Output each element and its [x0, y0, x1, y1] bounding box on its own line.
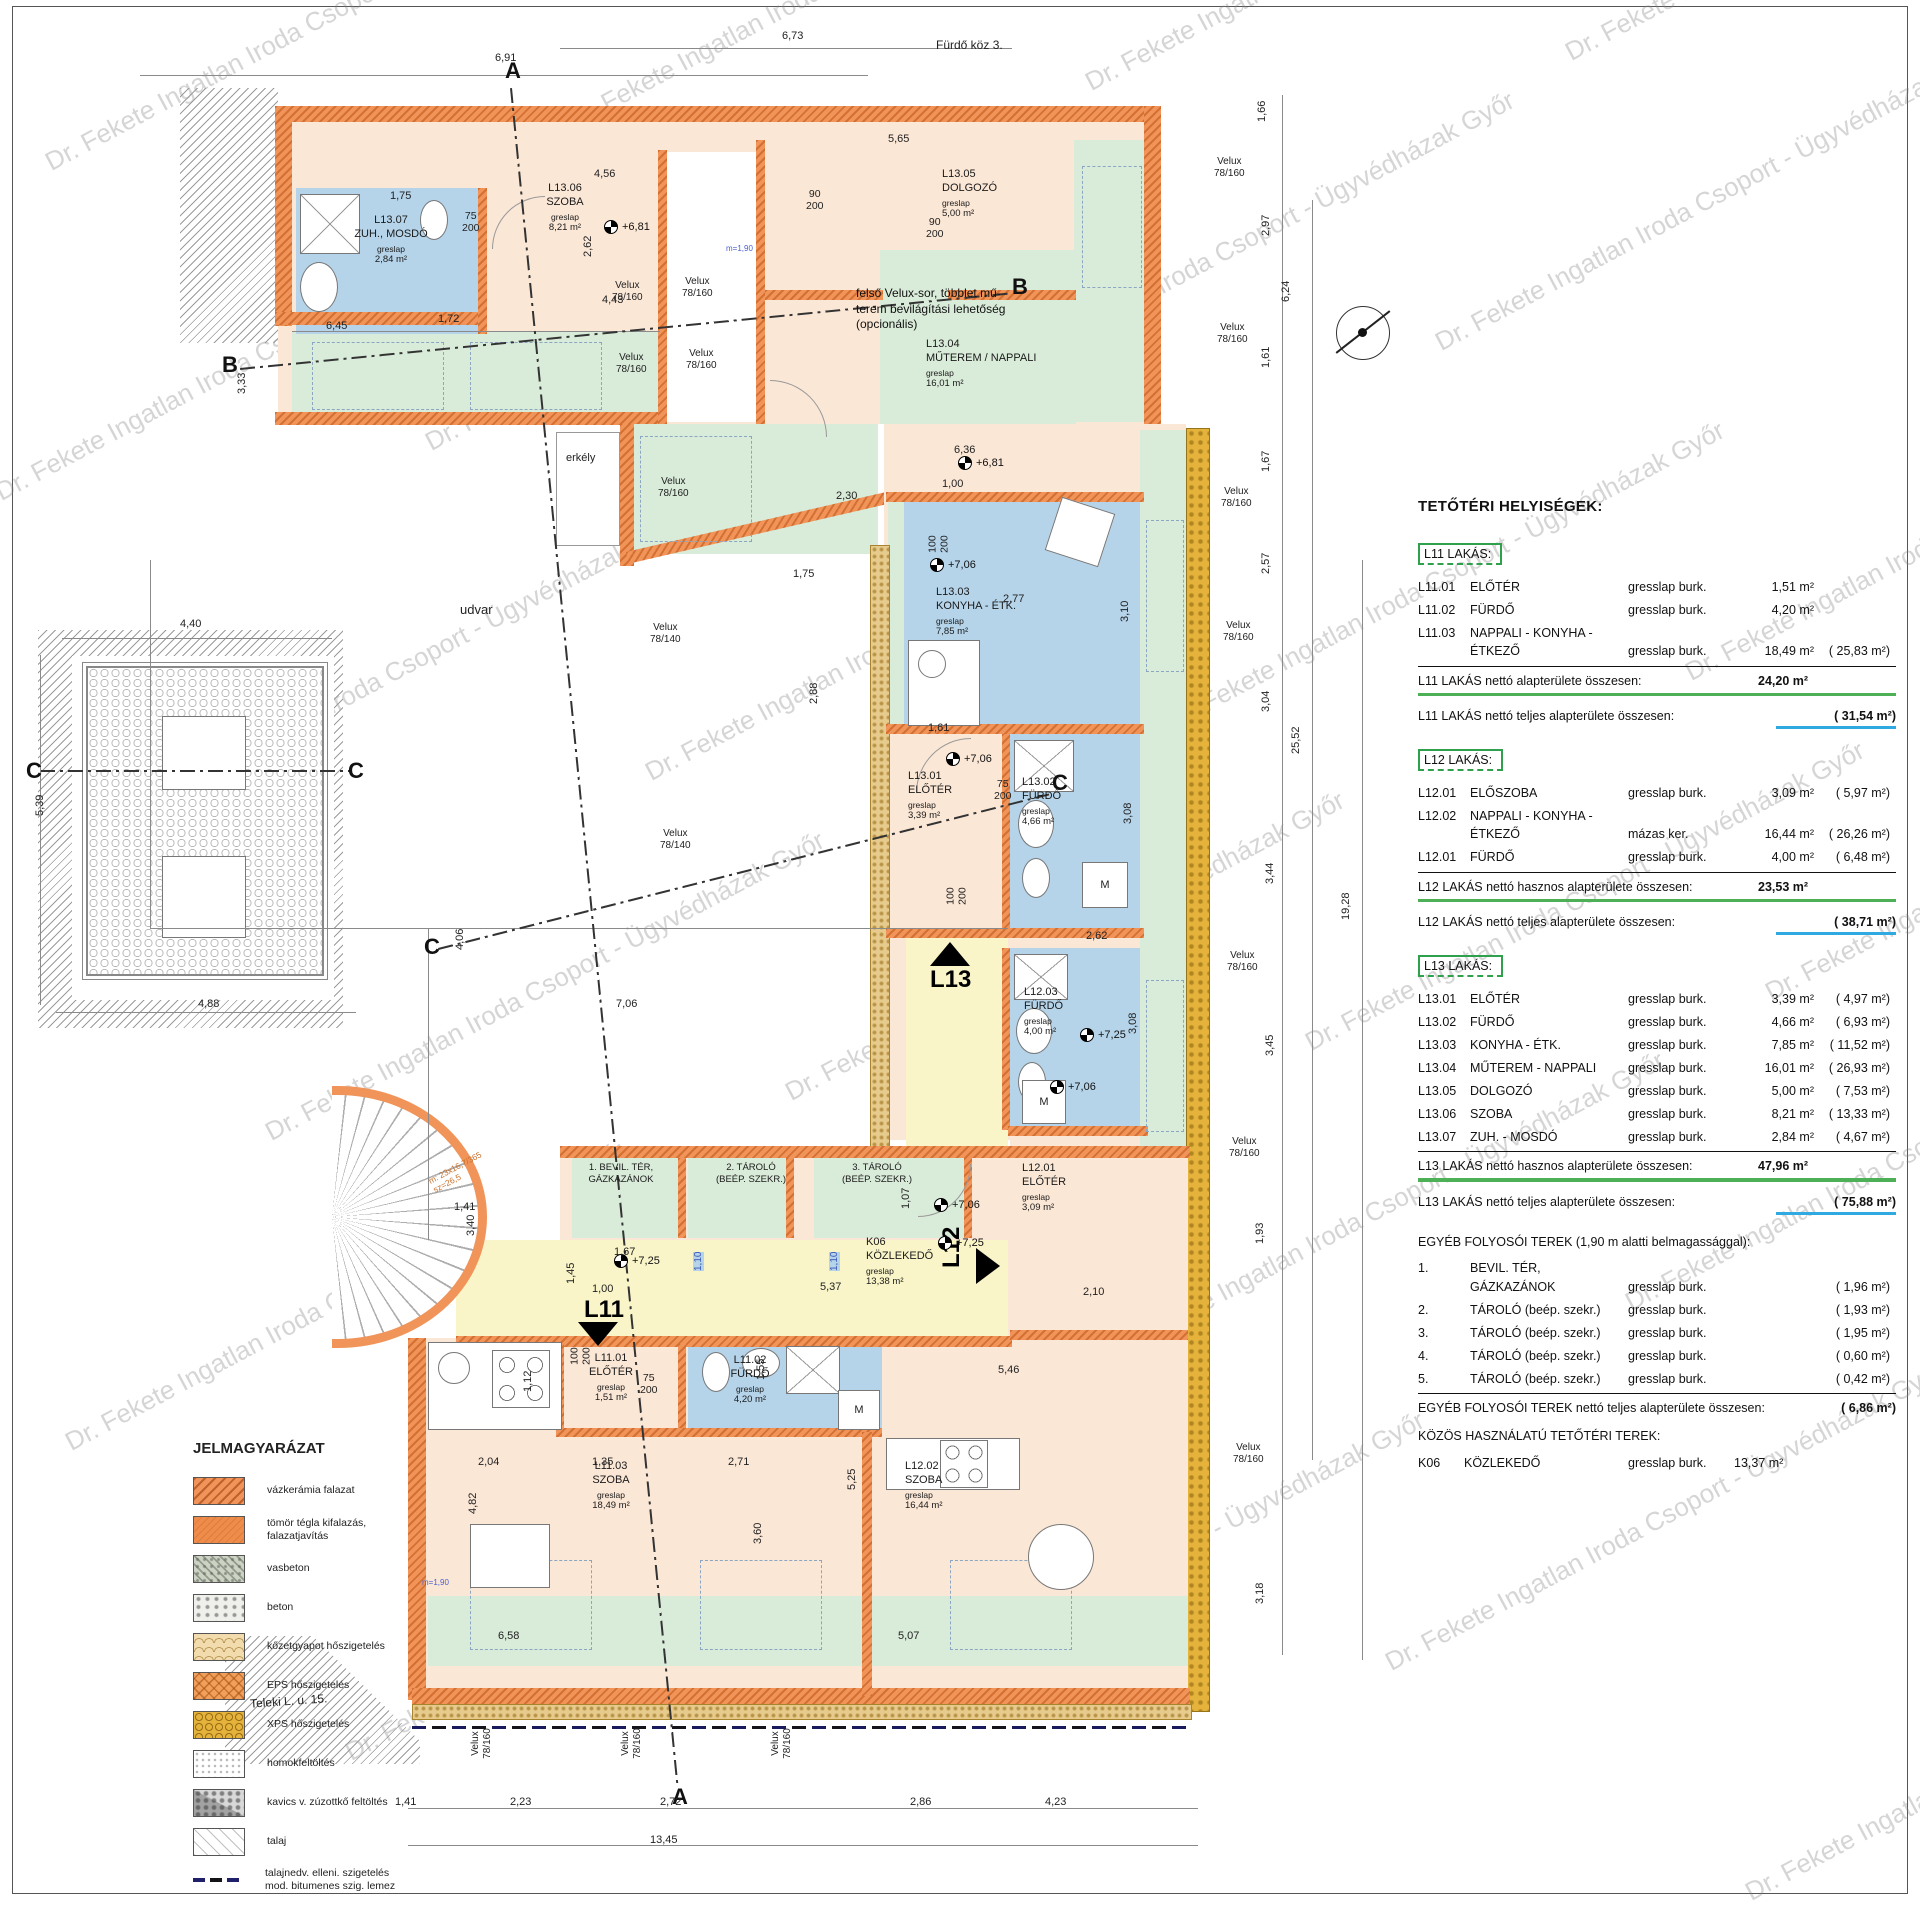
dimension-text: 1,67 — [614, 1246, 635, 1258]
row-finish: gresslap burk. — [1628, 1130, 1734, 1144]
dimension-text: 2,72 — [660, 1796, 681, 1808]
row-finish: gresslap burk. — [1628, 1372, 1734, 1386]
row-name: SZOBA — [1470, 1107, 1628, 1121]
storage-name2: (BEÉP. SZEKR.) — [812, 1174, 942, 1186]
schedule-group: L13 LAKÁS:L13.01ELŐTÉRgresslap burk.3,39… — [1418, 955, 1896, 1215]
toilet — [1022, 858, 1050, 898]
section-line-c — [40, 770, 352, 772]
schedule-row: L12.02NAPPALI - KONYHA - — [1418, 804, 1896, 827]
common-header: KÖZÖS HASZNÁLATÚ TETŐTÉRI TEREK: — [1418, 1429, 1896, 1443]
other-row: 4.TÁROLÓ (beép. szekr.)gresslap burk.( 0… — [1418, 1344, 1896, 1367]
dimension-text: 3,04 — [1260, 691, 1272, 712]
total-value: ( 38,71 m²) — [1776, 915, 1896, 935]
row-code: 3. — [1418, 1326, 1470, 1340]
dimension-text: 5,07 — [898, 1630, 919, 1642]
room-code: L12.01 — [1022, 1162, 1132, 1176]
room-name: FÜRDŐ — [1022, 790, 1132, 804]
elevation-mark: +7,06 — [946, 752, 992, 766]
row-finish: gresslap burk. — [1628, 992, 1734, 1006]
row-code: L11.01 — [1418, 580, 1470, 594]
row-name: ELŐTÉR — [1470, 992, 1628, 1006]
row-name2: GÁZKAZÁNOK — [1470, 1280, 1628, 1294]
other-row: 3.TÁROLÓ (beép. szekr.)gresslap burk.( 1… — [1418, 1321, 1896, 1344]
dimension-text: 5,46 — [998, 1364, 1019, 1376]
dim-line — [56, 1012, 356, 1013]
wall — [1002, 734, 1010, 930]
velux-window-label: Velux 78/160 — [658, 476, 689, 499]
schedule-row: L11.03NAPPALI - KONYHA - — [1418, 621, 1896, 644]
row-finish: gresslap burk. — [1628, 1349, 1734, 1363]
schedule-row: L13.06SZOBAgresslap burk.8,21 m²( 13,33 … — [1418, 1102, 1896, 1125]
row-net: 8,21 m² — [1734, 1107, 1818, 1121]
dim-line — [408, 1808, 1198, 1809]
legend-label: vázkerámia falazat — [267, 1484, 355, 1497]
row-name: TÁROLÓ (beép. szekr.) — [1470, 1372, 1628, 1386]
elevation-mark: +6,81 — [604, 220, 650, 234]
dimension-text: 4,23 — [1045, 1796, 1066, 1808]
storage-label: 1. BEVIL. TÉR,GÁZKAZÁNOK — [556, 1162, 686, 1186]
schedule-groups: L11 LAKÁS:L11.01ELŐTÉRgresslap burk.1,51… — [1418, 543, 1896, 1215]
subtotal-label: L12 LAKÁS nettó hasznos alapterülete öss… — [1418, 880, 1746, 894]
dimension-text: 4,88 — [198, 998, 219, 1010]
room-code: L13.07 — [326, 214, 456, 228]
dimension-text: 1,00 — [942, 478, 963, 490]
legend-title: JELMAGYARÁZAT — [193, 1440, 523, 1457]
street-name-top: Fürdő köz 3. — [936, 38, 1003, 52]
other-row-cont: GÁZKAZÁNOKgresslap burk.( 1,96 m²) — [1418, 1280, 1896, 1299]
velux-window-label: Velux 78/160 — [616, 352, 647, 375]
skylight — [1082, 166, 1142, 288]
door-size-label: 100 200 — [945, 887, 969, 905]
door-size-label: 100 200 — [927, 535, 951, 553]
legend-label: tömör tégla kifalazás, falazatjavítás — [267, 1517, 366, 1543]
dimension-text: 1,35 — [592, 1456, 613, 1468]
row-finish: gresslap burk. — [1628, 1015, 1734, 1029]
elevation-mark: +7,06 — [930, 558, 976, 572]
room-finish: greslap — [690, 1384, 810, 1395]
elevation-symbol — [1050, 1080, 1064, 1094]
room-code: L11.02 — [690, 1354, 810, 1368]
dimension-text: 2,71 — [728, 1456, 749, 1468]
neighbour-hatch — [180, 88, 278, 343]
other-row: 1.BEVIL. TÉR, — [1418, 1257, 1896, 1280]
other-total-value: ( 6,86 m²) — [1766, 1401, 1896, 1415]
dimension-text: 1,00 — [592, 1283, 613, 1295]
row-code: L12.01 — [1418, 850, 1470, 864]
other-row: 5.TÁROLÓ (beép. szekr.)gresslap burk.( 0… — [1418, 1367, 1896, 1390]
total-row: L12 LAKÁS nettó teljes alapterülete össz… — [1418, 911, 1896, 935]
wall — [275, 412, 667, 425]
room-finish: greslap — [552, 1490, 670, 1501]
subtotal-row: L13 LAKÁS nettó hasznos alapterülete öss… — [1418, 1151, 1896, 1173]
dimension-text: 1,67 — [1260, 451, 1272, 472]
row-name2: ÉTKEZŐ — [1470, 827, 1628, 841]
kitchen-sink — [918, 650, 946, 678]
total-row: L11 LAKÁS nettó teljes alapterülete össz… — [1418, 705, 1896, 729]
legend-swatch — [193, 1516, 245, 1544]
row-finish: gresslap burk. — [1628, 644, 1734, 658]
row-net: 4,66 m² — [1734, 1015, 1818, 1029]
legend-item: XPS hőszigetelés — [193, 1711, 523, 1739]
room-name: KÖZLEKEDŐ — [866, 1250, 996, 1264]
row-gross: ( 0,60 m²) — [1734, 1349, 1890, 1363]
schedule-row-cont: ÉTKEZŐgresslap burk.18,49 m²( 25,83 m²) — [1418, 644, 1896, 663]
dimension-text: 2,97 — [1260, 215, 1272, 236]
elevation-mark: +7,25 — [1080, 1028, 1126, 1042]
dim-line — [40, 655, 41, 1005]
velux-window-label: Velux 78/160 — [1233, 1442, 1264, 1465]
schedule-row: L12.01FÜRDŐgresslap burk.4,00 m²( 6,48 m… — [1418, 846, 1896, 869]
subtotal-label: L13 LAKÁS nettó hasznos alapterülete öss… — [1418, 1159, 1746, 1173]
insulated-wall — [870, 545, 890, 1154]
door-size-label: 75 200 — [994, 778, 1012, 802]
row-net: 2,84 m² — [1734, 1130, 1818, 1144]
row-finish: gresslap burk. — [1628, 1084, 1734, 1098]
row-gross: ( 4,97 m²) — [1818, 992, 1890, 1006]
xps-wall — [1186, 428, 1210, 1712]
row-name: KÖZLEKEDŐ — [1464, 1456, 1628, 1470]
dimension-text: 6,91 — [495, 52, 516, 64]
skylight — [640, 436, 752, 542]
dimension-text: 6,73 — [782, 30, 803, 42]
subtotal-value-bold: 47,96 m² — [1746, 1159, 1808, 1173]
storage-name2: GÁZKAZÁNOK — [556, 1174, 686, 1186]
sink — [300, 262, 338, 312]
row-name: NAPPALI - KONYHA - — [1470, 809, 1628, 823]
elevation-mark: +7,25 — [938, 1236, 984, 1250]
schedule-row: L13.07ZUH. - MOSDÓgresslap burk.2,84 m²(… — [1418, 1125, 1896, 1148]
dimension-text: 3,40 — [465, 1215, 477, 1236]
dimension-text: 1,41 — [454, 1201, 475, 1213]
elevation-value: +7,06 — [964, 753, 992, 765]
room-name: SZOBA — [505, 196, 625, 210]
schedule-row: L13.01ELŐTÉRgresslap burk.3,39 m²( 4,97 … — [1418, 987, 1896, 1010]
dimension-text: 5,39 — [34, 795, 46, 816]
row-code: L12.02 — [1418, 809, 1470, 823]
row-empty — [1734, 1261, 1890, 1275]
room-label-l1102: L11.02FÜRDŐgreslap4,20 m² — [690, 1354, 810, 1406]
row-gross: ( 1,95 m²) — [1734, 1326, 1890, 1340]
row-gross: ( 1,96 m²) — [1734, 1280, 1890, 1294]
total-label: L12 LAKÁS nettó teljes alapterülete össz… — [1418, 915, 1776, 935]
velux-window-label: Velux 78/160 — [686, 348, 717, 371]
row-name2: ÉTKEZŐ — [1470, 644, 1628, 658]
row-gross: ( 5,97 m²) — [1818, 786, 1890, 800]
legend-item: kőzetgyapot hőszigetelés — [193, 1633, 523, 1661]
row-net: 3,09 m² — [1734, 786, 1818, 800]
room-area: 7,85 m² — [936, 626, 1086, 638]
row-name: TÁROLÓ (beép. szekr.) — [1470, 1326, 1628, 1340]
wall — [886, 492, 1144, 502]
schedule-row: L13.02FÜRDŐgresslap burk.4,66 m²( 6,93 m… — [1418, 1010, 1896, 1033]
room-area: 16,44 m² — [905, 1500, 1025, 1512]
dimension-text: 1,66 — [1256, 101, 1268, 122]
dimension-text: 4,56 — [594, 168, 615, 180]
wall — [560, 1146, 1190, 1158]
elevation-value: +7,25 — [956, 1237, 984, 1249]
row-name: KONYHA - ÉTK. — [1470, 1038, 1628, 1052]
dimension-text: 3,08 — [1122, 803, 1134, 824]
elevation-value: +7,25 — [1098, 1029, 1126, 1041]
dimension-text: 2,88 — [808, 683, 820, 704]
washing-machine-label: M — [1039, 1096, 1048, 1108]
dim-line — [408, 1845, 1198, 1846]
room-finish: greslap — [1022, 1192, 1132, 1203]
row-net: 3,39 m² — [1734, 992, 1818, 1006]
stove — [492, 1350, 550, 1408]
storage-label: 3. TÁROLÓ(BEÉP. SZEKR.) — [812, 1162, 942, 1186]
room-code: L12.03 — [1024, 986, 1134, 1000]
elevation-value: +7,06 — [952, 1199, 980, 1211]
round-table — [1028, 1524, 1094, 1590]
subtotal-value: 47,96 m² — [1746, 1159, 1896, 1173]
velux-window-label: Velux 78/160 — [682, 276, 713, 299]
dimension-text: 5,37 — [820, 1281, 841, 1293]
row-finish: mázas ker. — [1628, 827, 1734, 841]
room-finish: greslap — [942, 198, 1072, 209]
dimension-text: 2,30 — [836, 490, 857, 502]
washing-machine: M — [838, 1390, 880, 1430]
schedule-row: L12.01ELŐSZOBAgresslap burk.3,09 m²( 5,9… — [1418, 781, 1896, 804]
total-label: L11 LAKÁS nettó teljes alapterülete össz… — [1418, 709, 1776, 729]
row-gross: ( 25,83 m²) — [1818, 644, 1890, 658]
balcony — [556, 432, 620, 546]
total-value: ( 75,88 m²) — [1776, 1195, 1896, 1215]
compass-hub — [1358, 328, 1367, 337]
legend-swatch — [193, 1867, 243, 1893]
dimension-text: 5,65 — [888, 133, 909, 145]
elevation-value: +7,06 — [1068, 1081, 1096, 1093]
velux-window-label: Velux 78/160 — [1227, 950, 1258, 973]
room-finish: greslap — [926, 368, 1106, 379]
legend-label: vasbeton — [267, 1562, 310, 1575]
room-name: ELŐTÉR — [1022, 1176, 1132, 1190]
dimension-text: 1,45 — [565, 1263, 577, 1284]
legend-label: talajnedv. elleni. szigetelés mod. bitum… — [265, 1867, 395, 1893]
courtyard-label: udvar — [460, 602, 493, 617]
room-finish: greslap — [1022, 806, 1132, 817]
legend-swatch — [193, 1633, 245, 1661]
room-area: 3,39 m² — [908, 810, 1018, 822]
wall — [756, 140, 765, 424]
room-name: FÜRDŐ — [690, 1368, 810, 1382]
room-area: 3,09 m² — [1022, 1202, 1132, 1214]
dimension-text: 2,10 — [1083, 1286, 1104, 1298]
room-code: L13.05 — [942, 168, 1072, 182]
row-gross: ( 0,42 m²) — [1734, 1372, 1890, 1386]
legend-swatch — [193, 1789, 245, 1817]
section-mark-c: C — [348, 758, 364, 784]
legend-swatch — [193, 1555, 245, 1583]
elevation-symbol — [930, 558, 944, 572]
dimension-text: 3,10 — [1119, 601, 1131, 622]
legend-item: tömör tégla kifalazás, falazatjavítás — [193, 1516, 523, 1544]
schedule-row-cont: ÉTKEZŐmázas ker.16,44 m²( 26,26 m²) — [1418, 827, 1896, 846]
row-name: TÁROLÓ (beép. szekr.) — [1470, 1349, 1628, 1363]
door-size-label: 90 200 — [806, 188, 824, 212]
legend-swatch — [193, 1750, 245, 1778]
dimension-text: 3,44 — [1264, 863, 1276, 884]
dimension-text: 4,06 — [454, 929, 466, 950]
storage-label: 2. TÁROLÓ(BEÉP. SZEKR.) — [686, 1162, 816, 1186]
skylight — [312, 342, 444, 410]
headroom-mark: m=1,90 — [726, 244, 753, 253]
row-finish: gresslap burk. — [1628, 1303, 1734, 1317]
dimension-text: 4,40 — [180, 618, 201, 630]
elevation-value: +6,81 — [622, 221, 650, 233]
velux-window-label: Velux 78/160 — [1217, 322, 1248, 345]
row-finish: gresslap burk. — [1628, 1038, 1734, 1052]
room-label-l1202: L12.02SZOBAgreslap16,44 m² — [905, 1460, 1025, 1512]
row-gross: ( 4,67 m²) — [1818, 1130, 1890, 1144]
schedule-row: L13.03KONYHA - ÉTK.gresslap burk.7,85 m²… — [1418, 1033, 1896, 1056]
room-code: L13.06 — [505, 182, 625, 196]
row-finish: gresslap burk. — [1628, 1326, 1734, 1340]
row-code: L13.07 — [1418, 1130, 1470, 1144]
row-code: L11.02 — [1418, 603, 1470, 617]
room-name: MŰTEREM / NAPPALI — [926, 352, 1106, 366]
row-code: K06 — [1418, 1456, 1464, 1470]
row-net: 16,44 m² — [1734, 827, 1818, 841]
section-mark-c: C — [26, 758, 42, 784]
dim-line — [140, 75, 868, 76]
total-label: L13 LAKÁS nettó teljes alapterülete össz… — [1418, 1195, 1776, 1215]
kitchen-counter — [908, 640, 980, 726]
schedule-row: L11.01ELŐTÉRgresslap burk.1,51 m² — [1418, 575, 1896, 598]
row-code: 2. — [1418, 1303, 1470, 1317]
apartment-header: L12 LAKÁS: — [1418, 749, 1503, 771]
row-net: 13,37 m² — [1734, 1456, 1818, 1470]
washing-machine-label: M — [854, 1404, 863, 1416]
schedule-row: L13.04MŰTEREM - NAPPALIgresslap burk.16,… — [1418, 1056, 1896, 1079]
velux-window-label: Velux 78/140 — [660, 828, 691, 851]
moisture-barrier-line — [412, 1726, 1190, 1729]
row-finish: gresslap burk. — [1628, 786, 1734, 800]
room-name: DOLGOZÓ — [942, 182, 1072, 196]
subtotal-row: L11 LAKÁS nettó alapterülete összesen:24… — [1418, 666, 1896, 688]
row-code: 5. — [1418, 1372, 1470, 1386]
dim-line — [1362, 560, 1363, 1660]
dimension-text: 1,12 — [522, 1371, 534, 1392]
legend-label: homokfeltöltés — [267, 1757, 335, 1770]
room-code: L13.02 — [1022, 776, 1132, 790]
elevation-symbol — [938, 1236, 952, 1250]
row-finish: gresslap burk. — [1628, 850, 1734, 864]
room-finish: greslap — [326, 244, 456, 255]
row-empty — [1418, 1280, 1470, 1294]
room-code: L13.04 — [926, 338, 1106, 352]
elevation-symbol — [958, 456, 972, 470]
row-net: 1,51 m² — [1734, 580, 1818, 594]
row-gross: ( 11,52 m²) — [1818, 1038, 1890, 1052]
dimension-text: 1,55 — [755, 1359, 767, 1380]
schedule-row: L11.02FÜRDŐgresslap burk.4,20 m² — [1418, 598, 1896, 621]
roof-edge — [150, 560, 151, 928]
common-row: K06KÖZLEKEDŐgresslap burk.13,37 m² — [1418, 1451, 1896, 1474]
room-name: FÜRDŐ — [1024, 1000, 1134, 1014]
other-row: 2.TÁROLÓ (beép. szekr.)gresslap burk.( 1… — [1418, 1298, 1896, 1321]
door-size-label: 75 200 — [640, 1372, 658, 1396]
legend-item: EPS hőszigetelés — [193, 1672, 523, 1700]
row-gross: ( 13,33 m²) — [1818, 1107, 1890, 1121]
legend-swatch — [193, 1672, 245, 1700]
schedule-other: EGYÉB FOLYOSÓI TEREK (1,90 m alatti belm… — [1418, 1235, 1896, 1416]
row-name: ZUH. - MOSDÓ — [1470, 1130, 1628, 1144]
subtotal-value-bold: 23,53 m² — [1746, 880, 1808, 894]
elevation-value: +7,25 — [632, 1255, 660, 1267]
dimension-text: 19,28 — [1340, 892, 1352, 920]
storage-no-name: 2. TÁROLÓ — [686, 1162, 816, 1174]
velux-window-label: Velux 78/160 — [1229, 1136, 1260, 1159]
row-name: FÜRDŐ — [1470, 850, 1628, 864]
mid-strip — [888, 502, 904, 724]
schedule-common: KÖZÖS HASZNÁLATÚ TETŐTÉRI TEREK:K06KÖZLE… — [1418, 1429, 1896, 1474]
row-name: FÜRDŐ — [1470, 603, 1628, 617]
north-compass — [1336, 306, 1390, 360]
row-code: L13.01 — [1418, 992, 1470, 1006]
wall — [275, 106, 292, 326]
roof-edge — [150, 928, 1008, 929]
row-name: TÁROLÓ (beép. szekr.) — [1470, 1303, 1628, 1317]
legend-label: beton — [267, 1601, 293, 1614]
elevation-mark: +7,06 — [934, 1198, 980, 1212]
entrance-arrow-l11 — [578, 1322, 618, 1346]
row-net: 7,85 m² — [1734, 1038, 1818, 1052]
dimension-text: 3,33 — [236, 373, 248, 394]
legend-item: beton — [193, 1594, 523, 1622]
subtotal-row: L12 LAKÁS nettó hasznos alapterülete öss… — [1418, 872, 1896, 894]
wall — [658, 150, 667, 425]
legend-swatch — [193, 1828, 245, 1856]
row-net: 16,01 m² — [1734, 1061, 1818, 1075]
room-label-l1302: L13.02FÜRDŐgreslap4,66 m² — [1022, 776, 1132, 828]
legend-swatch — [193, 1477, 245, 1505]
dimension-text: 2,86 — [910, 1796, 931, 1808]
schedule-group: L12 LAKÁS:L12.01ELŐSZOBAgresslap burk.3,… — [1418, 749, 1896, 935]
row-name: FÜRDŐ — [1470, 1015, 1628, 1029]
elevation-value: +7,06 — [948, 559, 976, 571]
subtotal-underline — [1418, 1178, 1896, 1182]
skylight — [700, 1560, 822, 1650]
row-gross: ( 7,53 m²) — [1818, 1084, 1890, 1098]
room-area: 16,01 m² — [926, 378, 1106, 390]
row-name: MŰTEREM - NAPPALI — [1470, 1061, 1628, 1075]
wall — [412, 1688, 1190, 1704]
dimension-text: 2,62 — [582, 236, 594, 257]
floor-plan-sheet: { "watermark": "Dr. Fekete Ingatlan Irod… — [0, 0, 1920, 1901]
row-code: L13.05 — [1418, 1084, 1470, 1098]
row-code: L13.02 — [1418, 1015, 1470, 1029]
dim-line — [1312, 200, 1313, 1460]
legend-label: EPS hőszigetelés — [267, 1679, 349, 1692]
row-code: 4. — [1418, 1349, 1470, 1363]
apartment-header: L13 LAKÁS: — [1418, 955, 1503, 977]
room-name: SZOBA — [905, 1474, 1025, 1488]
room-finish: greslap — [905, 1490, 1025, 1501]
row-net: 4,00 m² — [1734, 850, 1818, 864]
dim-line — [1282, 95, 1283, 1655]
legend-item: homokfeltöltés — [193, 1750, 523, 1778]
velux-window-label: Velux 78/160 — [1214, 156, 1245, 179]
schedule-group: L11 LAKÁS:L11.01ELŐTÉRgresslap burk.1,51… — [1418, 543, 1896, 729]
velux-window-label: Velux 78/160 — [620, 1728, 643, 1759]
room-finish: greslap — [936, 616, 1086, 627]
elevation-symbol — [946, 752, 960, 766]
velux-window-label: Velux 78/140 — [650, 622, 681, 645]
room-label-l1305: L13.05DOLGOZÓgreslap5,00 m² — [942, 168, 1072, 220]
dimension-text: 3,08 — [1127, 1013, 1139, 1034]
elevation-value: +6,81 — [976, 457, 1004, 469]
